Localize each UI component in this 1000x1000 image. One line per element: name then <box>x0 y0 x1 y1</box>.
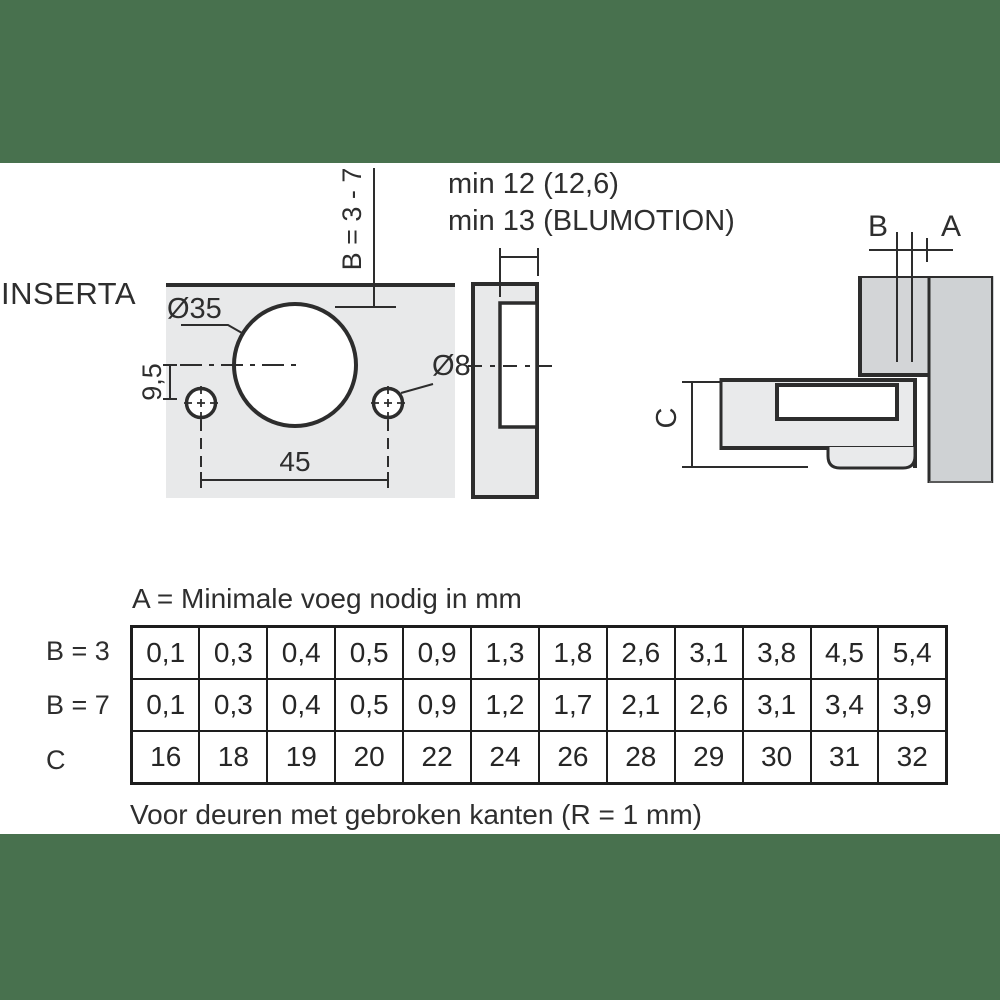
table-row: 0,1 0,3 0,4 0,5 0,9 1,2 1,7 2,1 2,6 3,1 … <box>132 679 947 731</box>
table-cell: 3,9 <box>878 679 946 731</box>
row-label-b7: B = 7 <box>46 690 110 721</box>
height-label-c: C <box>650 404 684 432</box>
table-cell: 32 <box>878 731 946 784</box>
table-cell: 0,5 <box>335 679 403 731</box>
table-cell: 0,3 <box>199 679 267 731</box>
cup-diameter-label: Ø35 <box>167 293 222 326</box>
table-footnote: Voor deuren met gebroken kanten (R = 1 m… <box>130 799 702 831</box>
table-cell: 19 <box>267 731 335 784</box>
vertical-offset-label: 9,5 <box>135 361 169 403</box>
row-label-b3: B = 3 <box>46 636 110 667</box>
tolerance-table: 0,1 0,3 0,4 0,5 0,9 1,3 1,8 2,6 3,1 3,8 … <box>130 625 948 785</box>
table-cell: 0,4 <box>267 627 335 680</box>
table-cell: 2,6 <box>607 627 675 680</box>
table-cell: 0,3 <box>199 627 267 680</box>
table-row: 0,1 0,3 0,4 0,5 0,9 1,3 1,8 2,6 3,1 3,8 … <box>132 627 947 680</box>
table-cell: 0,5 <box>335 627 403 680</box>
table-cell: 30 <box>743 731 811 784</box>
table-cell: 28 <box>607 731 675 784</box>
table-cell: 20 <box>335 731 403 784</box>
table-cell: 0,1 <box>132 679 200 731</box>
drilling-distance-label: B = 3 - 7 <box>335 165 369 273</box>
table-cell: 2,6 <box>675 679 743 731</box>
catalog-page: INSERTA min 12 (12,6) min 13 (BLUMOTION)… <box>0 0 1000 1000</box>
table-cell: 0,9 <box>403 627 471 680</box>
gap-label-a: A <box>935 210 967 244</box>
table-cell: 16 <box>132 731 200 784</box>
table-cell: 0,4 <box>267 679 335 731</box>
row-label-c: C <box>46 745 66 776</box>
table-cell: 1,7 <box>539 679 607 731</box>
table-caption: A = Minimale voeg nodig in mm <box>132 583 522 615</box>
hole-spacing-label: 45 <box>264 446 326 478</box>
table-cell: 4,5 <box>811 627 879 680</box>
door-section-panel <box>858 276 929 377</box>
table-cell: 1,3 <box>471 627 539 680</box>
table-cell: 1,2 <box>471 679 539 731</box>
table-row: 16 18 19 20 22 24 26 28 29 30 31 32 <box>132 731 947 784</box>
cabinet-side-panel <box>929 276 994 483</box>
product-name-label: INSERTA <box>1 276 136 312</box>
cross-section-drawing <box>682 232 994 483</box>
table-cell: 0,1 <box>132 627 200 680</box>
gap-label-b: B <box>862 210 894 244</box>
table-cell: 3,8 <box>743 627 811 680</box>
table-cell: 5,4 <box>878 627 946 680</box>
table-cell: 1,8 <box>539 627 607 680</box>
table-cell: 0,9 <box>403 679 471 731</box>
table-cell: 3,4 <box>811 679 879 731</box>
hinge-cup-tab <box>828 447 915 468</box>
side-view-drawing <box>468 248 560 497</box>
technical-drawing <box>0 0 1000 1000</box>
table-cell: 22 <box>403 731 471 784</box>
table-cell: 18 <box>199 731 267 784</box>
table-cell: 29 <box>675 731 743 784</box>
table-cell: 3,1 <box>743 679 811 731</box>
table-cell: 3,1 <box>675 627 743 680</box>
table-cell: 24 <box>471 731 539 784</box>
table-cell: 2,1 <box>607 679 675 731</box>
table-cell: 31 <box>811 731 879 784</box>
depth-note-line2: min 13 (BLUMOTION) <box>448 205 735 238</box>
depth-note-line1: min 12 (12,6) <box>448 168 619 201</box>
screw-hole-diameter-label: Ø8 <box>432 350 471 383</box>
table-cell: 26 <box>539 731 607 784</box>
hinge-arm-slot <box>777 385 897 419</box>
